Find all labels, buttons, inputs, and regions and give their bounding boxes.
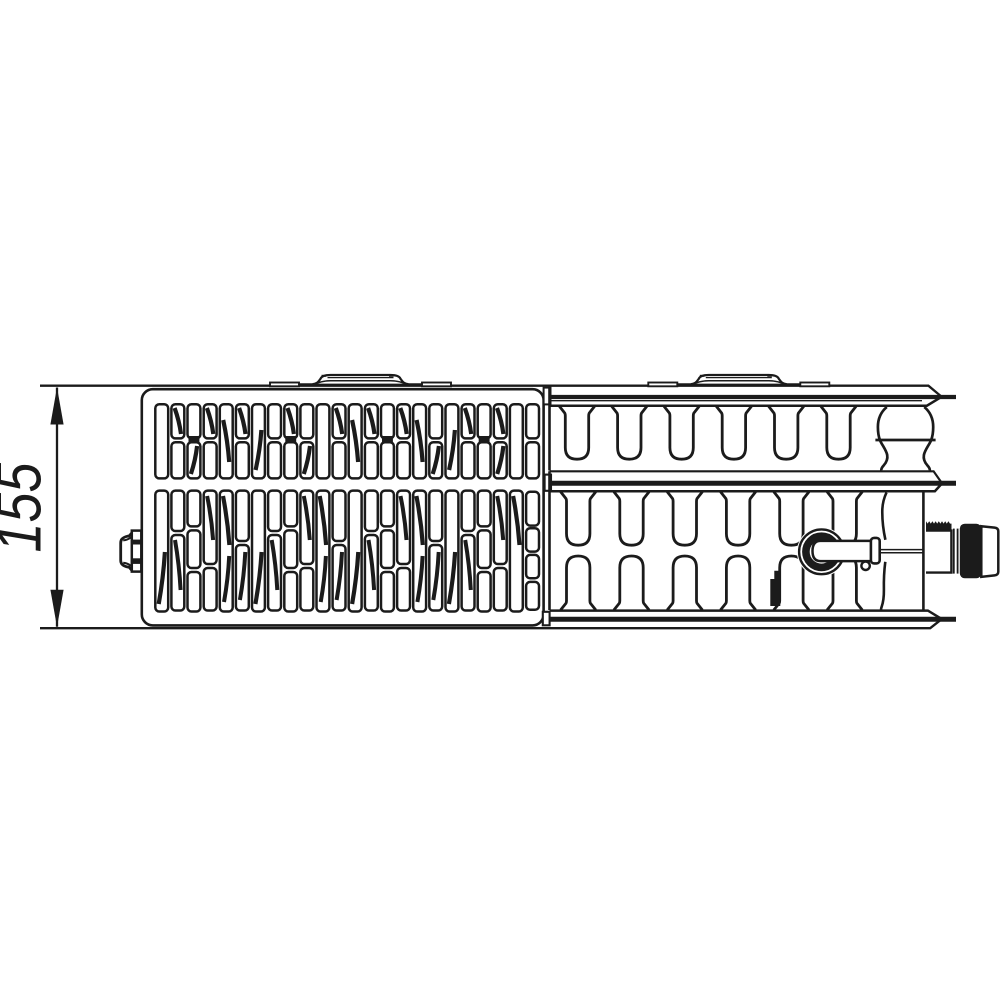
svg-text:155: 155 (0, 462, 55, 552)
